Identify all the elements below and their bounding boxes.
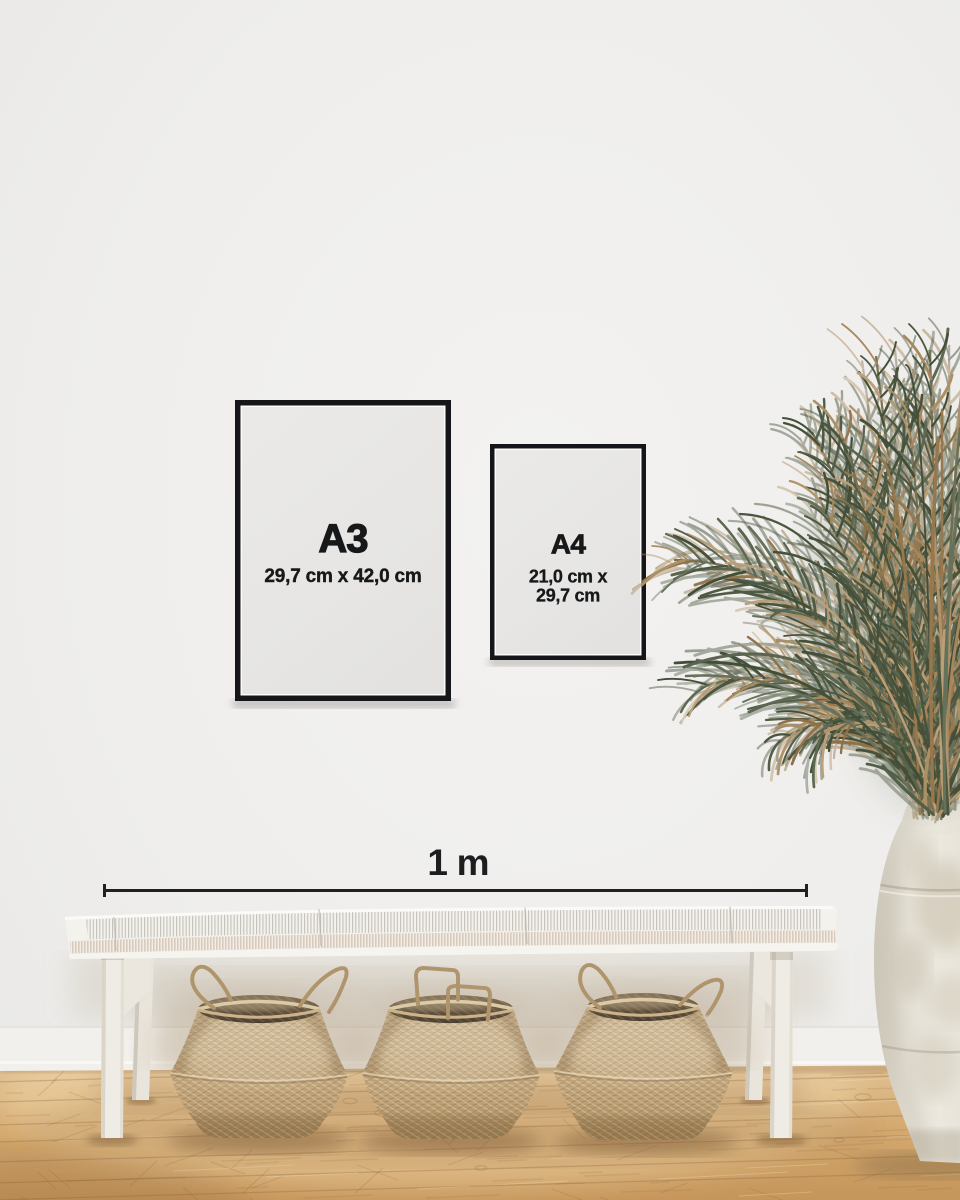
svg-text:21,0 cm x: 21,0 cm x	[529, 567, 608, 587]
svg-text:A3: A3	[318, 517, 367, 561]
svg-text:A4: A4	[551, 529, 587, 560]
svg-text:1 m: 1 m	[427, 842, 488, 883]
svg-text:29,7 cm: 29,7 cm	[536, 586, 600, 606]
svg-text:29,7 cm x 42,0 cm: 29,7 cm x 42,0 cm	[264, 566, 421, 587]
